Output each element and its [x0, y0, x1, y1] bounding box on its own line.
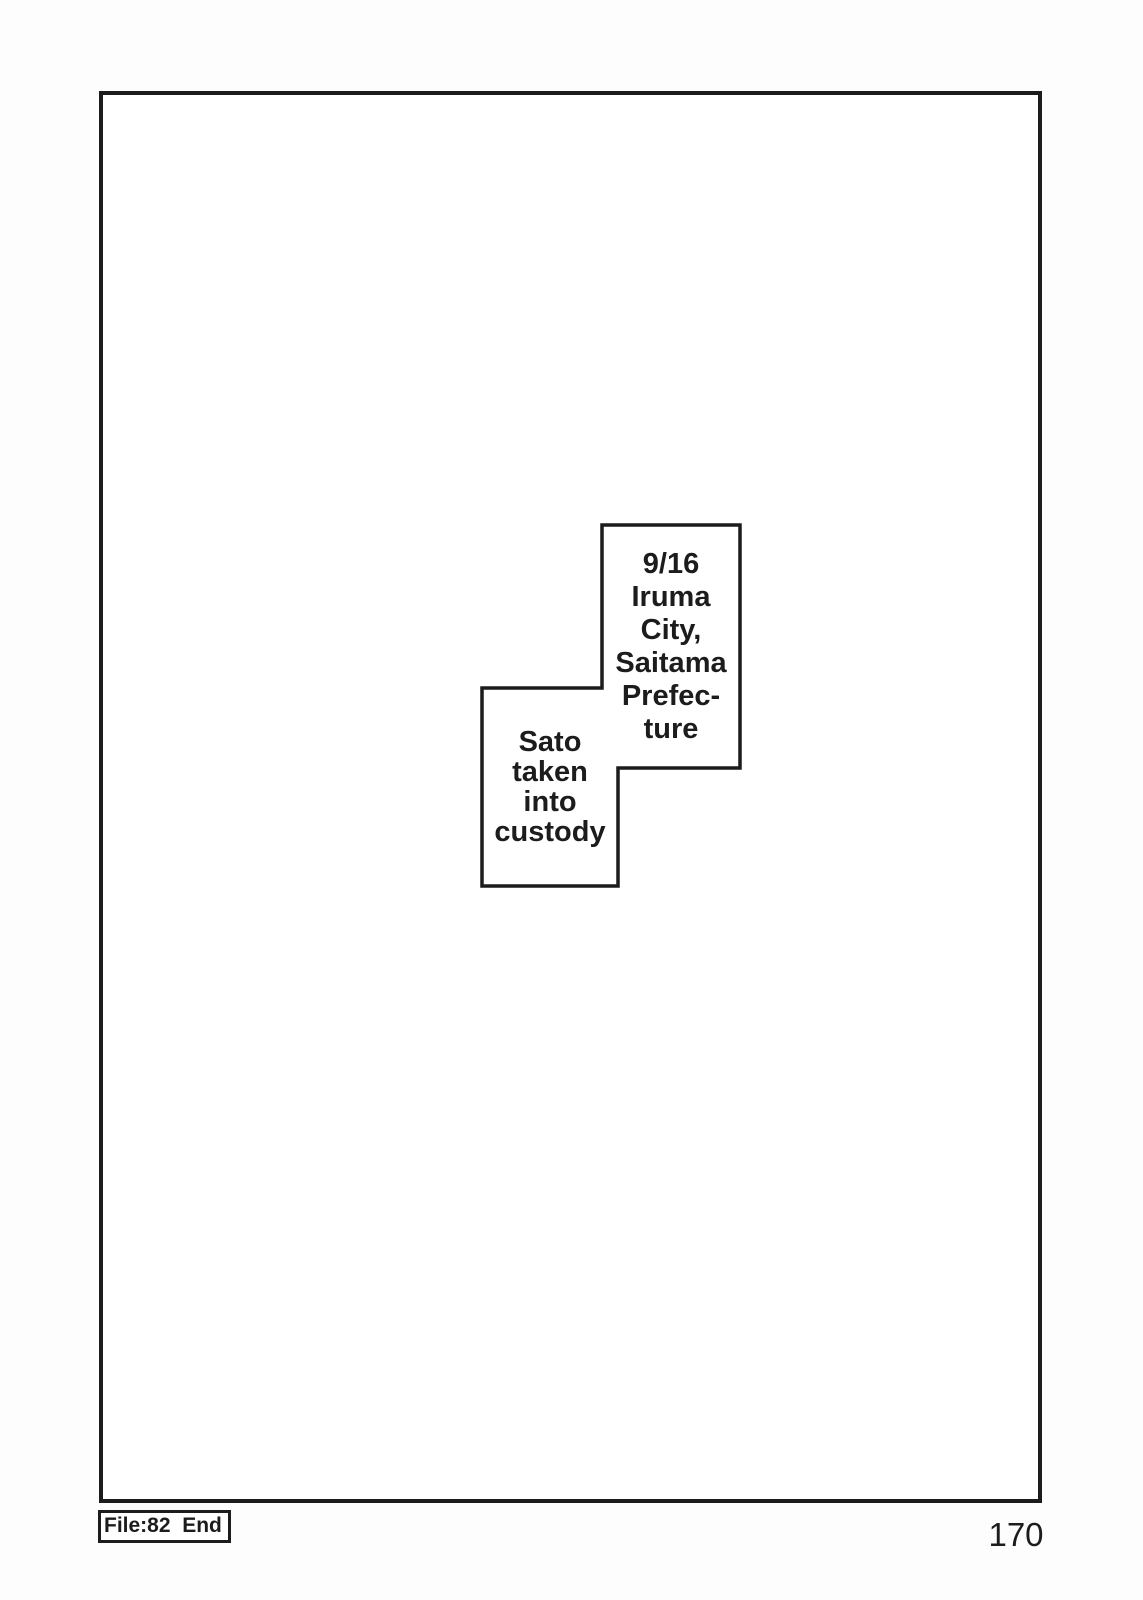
file-end-label: File:82 End — [104, 1514, 222, 1537]
file-end-box: File:82 End — [98, 1510, 231, 1543]
page-number: 170 — [986, 1518, 1046, 1551]
caption-event: Sato taken into custody — [482, 688, 618, 886]
caption-date-location: 9/16 Iruma City, Saitama Prefec- ture — [602, 525, 740, 768]
manga-page: 9/16 Iruma City, Saitama Prefec- ture Sa… — [0, 0, 1143, 1600]
